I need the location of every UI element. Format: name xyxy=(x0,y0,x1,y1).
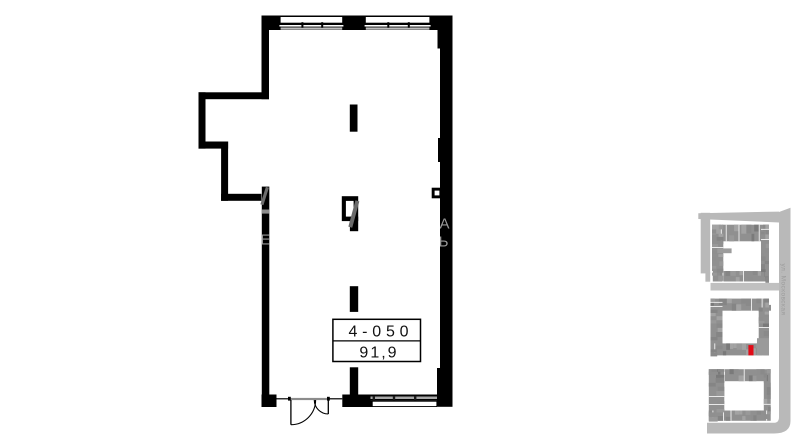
svg-text:А: А xyxy=(439,215,449,232)
svg-text:Е: Е xyxy=(260,231,270,248)
svg-text:ул. Московская: ул. Московская xyxy=(780,264,787,316)
svg-text:91,9: 91,9 xyxy=(359,345,398,362)
svg-text:Ь: Ь xyxy=(439,233,449,250)
svg-text:4-050: 4-050 xyxy=(348,324,413,341)
